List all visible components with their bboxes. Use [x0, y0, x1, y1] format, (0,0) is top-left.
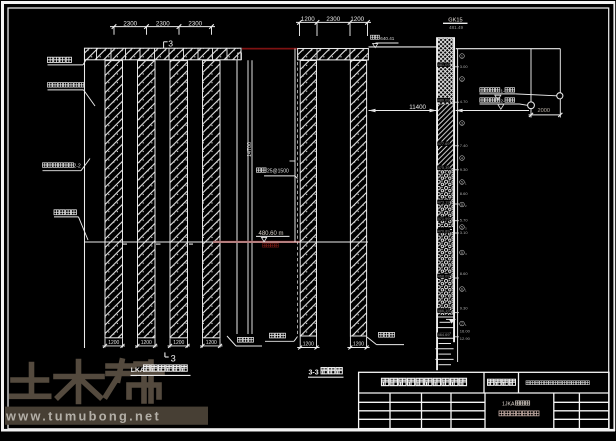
svg-text:1200: 1200: [353, 342, 364, 348]
svg-text:480.09: 480.09: [438, 98, 450, 103]
svg-text:3.00: 3.00: [460, 64, 469, 69]
svg-text:5: 5: [461, 225, 463, 229]
svg-text:481.49: 481.49: [449, 25, 463, 30]
svg-text:2-2: 2-2: [74, 164, 81, 170]
svg-text:LKA: LKA: [131, 367, 145, 374]
svg-text:8.60: 8.60: [460, 271, 469, 276]
svg-text:481.09: 481.09: [438, 62, 450, 67]
svg-text:475.39: 475.39: [438, 165, 450, 170]
svg-text:468.09: 468.09: [438, 273, 450, 278]
svg-text:5: 5: [461, 251, 463, 255]
svg-text:7: 7: [461, 322, 463, 326]
svg-text:8.60: 8.60: [460, 191, 469, 196]
svg-text:1200: 1200: [108, 340, 119, 346]
svg-text:1JKA: 1JKA: [502, 401, 515, 407]
svg-text:466.19: 466.19: [438, 308, 450, 313]
svg-text:2300: 2300: [123, 20, 137, 27]
svg-text:2300: 2300: [156, 20, 170, 27]
svg-text:4: 4: [461, 156, 463, 160]
svg-text:14700: 14700: [247, 142, 253, 157]
svg-text:4.70: 4.70: [460, 99, 469, 104]
svg-text:1200: 1200: [206, 340, 217, 346]
svg-text:3-3: 3-3: [309, 369, 319, 376]
svg-text:1200: 1200: [350, 16, 364, 23]
svg-text:640.41: 640.41: [380, 36, 394, 41]
svg-text:2000: 2000: [538, 108, 550, 114]
svg-text:11400: 11400: [409, 104, 426, 111]
svg-text:471.99: 471.99: [438, 216, 450, 221]
svg-text:1200: 1200: [141, 340, 152, 346]
svg-text:477.69: 477.69: [438, 141, 450, 146]
svg-text:1-: 1-: [501, 89, 506, 94]
svg-text:9.30: 9.30: [460, 306, 469, 311]
svg-text:3: 3: [168, 39, 173, 49]
svg-text:5: 5: [461, 203, 463, 207]
svg-text:1200: 1200: [301, 16, 315, 23]
svg-text:6: 6: [461, 287, 463, 291]
svg-text:2300: 2300: [188, 20, 202, 27]
svg-text:16.00: 16.00: [460, 329, 471, 334]
svg-text:12.90: 12.90: [460, 336, 471, 341]
svg-text:1200: 1200: [173, 340, 184, 346]
svg-text:5.70: 5.70: [460, 218, 469, 223]
svg-text:7.40: 7.40: [460, 143, 469, 148]
svg-text:3: 3: [461, 121, 463, 125]
svg-text:464.69: 464.69: [438, 332, 450, 337]
svg-text:9.30: 9.30: [460, 167, 469, 172]
svg-text:2: 2: [461, 77, 463, 81]
svg-text:1: 1: [461, 54, 463, 58]
svg-text:5: 5: [461, 180, 463, 184]
svg-text:2300: 2300: [326, 16, 340, 23]
svg-text:www.tumubong.net: www.tumubong.net: [5, 409, 161, 424]
svg-text:1200: 1200: [303, 342, 314, 348]
svg-text:2-: 2-: [501, 99, 506, 104]
svg-text:473.19: 473.19: [438, 199, 450, 204]
svg-text:470.89: 470.89: [438, 228, 450, 233]
svg-text:3: 3: [171, 354, 176, 364]
svg-text:3.10: 3.10: [460, 230, 469, 235]
svg-text:GK15: GK15: [448, 17, 462, 23]
svg-text:25@1500: 25@1500: [267, 168, 289, 174]
